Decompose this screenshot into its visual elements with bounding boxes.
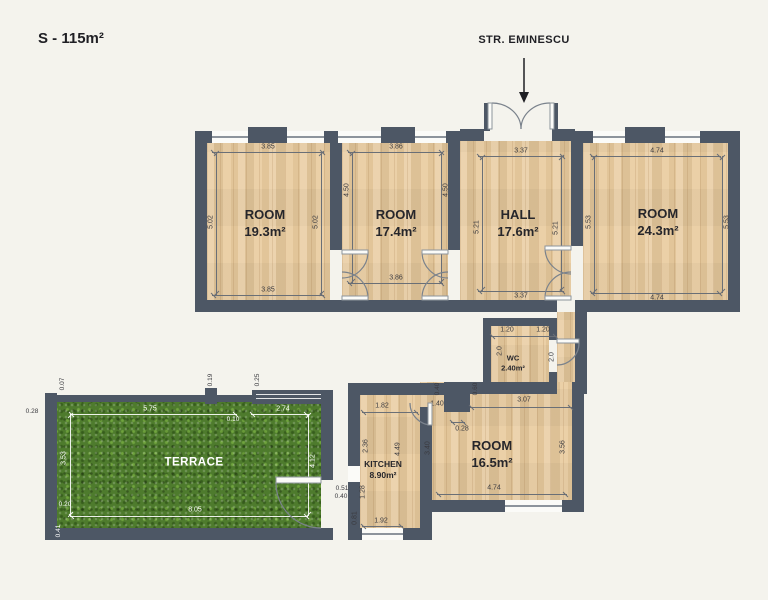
wall [625, 127, 665, 143]
wall-hatch [256, 398, 329, 399]
dim-line [70, 516, 308, 517]
wall [575, 300, 740, 312]
dim-label: 0.41 [56, 525, 63, 538]
kitchen-door-opening [348, 466, 360, 482]
window [593, 131, 625, 143]
dim-label: 3.40 [425, 441, 432, 455]
window [212, 131, 248, 143]
wall [248, 127, 287, 143]
room2-label: ROOM17.4m² [375, 207, 416, 241]
window [415, 131, 446, 143]
dim-line [591, 156, 721, 157]
wc-area: 2.40m² [501, 363, 525, 373]
room5-area: 16.5m² [471, 455, 512, 472]
wall [324, 131, 338, 143]
dim-line [482, 156, 483, 291]
dim-label: 3.85 [261, 287, 275, 294]
wall [448, 141, 460, 250]
dim-line [594, 156, 595, 293]
dim-line [451, 422, 465, 423]
terrace-top-wall [57, 395, 252, 402]
terrace-pillar [205, 388, 217, 404]
floor-plan: S - 115m² STR. EMINESCU [0, 0, 768, 600]
dim-label: 0.10 [227, 417, 240, 424]
dim-label: 1.82 [375, 403, 389, 410]
dim-line [216, 152, 217, 295]
wc-name: WC [507, 353, 520, 362]
page-title: S - 115m² [38, 30, 104, 47]
wall-hatch [256, 394, 329, 395]
dim-label: 0.28 [455, 426, 469, 433]
room1-label: ROOM19.3m² [244, 207, 285, 241]
window [362, 528, 403, 540]
dim-line [437, 494, 567, 495]
wc-label: WC2.40m² [501, 353, 525, 373]
dim-label: 3.85 [261, 144, 275, 151]
dim-label: 5.02 [208, 215, 215, 229]
room1-area: 19.3m² [244, 224, 285, 241]
dim-label: 3.53 [61, 451, 68, 465]
dim-line [352, 152, 353, 283]
dim-label: 5.21 [474, 220, 481, 234]
dim-label: 4.50 [443, 183, 450, 197]
dim-label: 0.25 [255, 374, 262, 387]
room4-area: 24.3m² [637, 223, 678, 240]
wall [195, 131, 212, 143]
dim-label: 0.40 [335, 494, 348, 501]
window [665, 131, 700, 143]
dim-label: 4.74 [487, 485, 501, 492]
dim-line [362, 526, 403, 527]
dim-line [441, 152, 442, 283]
street-label: STR. EMINESCU [478, 34, 569, 46]
dim-label: 0.07 [60, 378, 67, 391]
dim-label: 4.12 [310, 454, 317, 468]
wall [572, 382, 584, 512]
dim-line [321, 152, 322, 295]
dim-label: 4.49 [395, 442, 402, 456]
dim-line [212, 295, 324, 296]
dim-label: 8.05 [188, 507, 202, 514]
dim-label: 3.37 [514, 148, 528, 155]
hall-label: HALL17.6m² [497, 207, 538, 241]
room5-name: ROOM [472, 438, 512, 453]
room1-name: ROOM [245, 207, 285, 222]
terrace-name: TERRACE [164, 457, 223, 469]
kitchen-area: 8.90m² [364, 470, 402, 481]
dim-line [478, 156, 564, 157]
entrance-jamb [484, 103, 490, 131]
dim-label: 3.86 [389, 275, 403, 282]
dim-label: 5.21 [553, 221, 560, 235]
dim-label: 1.40 [430, 401, 444, 408]
dim-line [251, 414, 308, 415]
wall [348, 383, 444, 395]
wall [195, 131, 207, 312]
window [287, 131, 324, 143]
entrance-door-arc [521, 103, 550, 129]
notch-wall [444, 382, 470, 412]
dim-label: 0.81 [352, 511, 359, 525]
dim-line [362, 412, 418, 413]
dim-label: 1.20 [536, 327, 550, 334]
wall [460, 129, 484, 141]
room4-label: ROOM24.3m² [637, 206, 678, 240]
wall [381, 127, 415, 143]
window [338, 131, 381, 143]
dim-label: 4.74 [650, 295, 664, 302]
dim-label: 5.02 [313, 215, 320, 229]
kitchen-label: KITCHEN8.90m² [364, 459, 402, 481]
entrance-door-arc [492, 103, 521, 129]
terrace-label: TERRACE [164, 456, 223, 471]
street-arrow [519, 58, 529, 103]
wall [470, 382, 557, 394]
wall [321, 390, 333, 480]
wall [45, 528, 333, 540]
dim-label: 0.20 [59, 502, 72, 509]
hall-area: 17.6m² [497, 224, 538, 241]
dim-label: 3.37 [514, 293, 528, 300]
dim-label: 5.53 [586, 215, 593, 229]
room4-name: ROOM [638, 206, 678, 221]
wall [483, 318, 491, 390]
dim-label: 1.20 [500, 327, 514, 334]
window [505, 500, 562, 512]
dim-label: 2.0 [497, 346, 504, 356]
dim-line [561, 156, 562, 291]
dim-label: 5.75 [143, 406, 157, 413]
room2-area: 17.4m² [375, 224, 416, 241]
dim-line [348, 283, 443, 284]
dim-label: 4.74 [650, 148, 664, 155]
wall [420, 407, 432, 540]
wall [330, 143, 342, 250]
dim-label: 0.51 [336, 486, 349, 493]
dim-label: 0.60 [473, 383, 480, 396]
dim-line [491, 336, 557, 337]
dim-label: 0.40 [435, 383, 442, 396]
dim-label: 0.19 [208, 374, 215, 387]
dim-label: 0.28 [26, 409, 39, 416]
wall [195, 300, 557, 312]
dim-label: 3.07 [517, 397, 531, 404]
dim-label: 1.28 [360, 485, 367, 499]
dim-line [212, 152, 324, 153]
dim-label: 3.86 [389, 144, 403, 151]
dim-line [348, 152, 443, 153]
dim-label: 5.53 [724, 215, 731, 229]
dim-label: 2.74 [276, 406, 290, 413]
dim-label: 3.56 [560, 440, 567, 454]
wall [571, 141, 583, 246]
dim-line [470, 407, 572, 408]
wall [483, 318, 557, 326]
entrance-jamb [552, 103, 558, 131]
dim-label: 2.36 [363, 439, 370, 453]
hall-name: HALL [501, 207, 536, 222]
wall [45, 393, 57, 540]
kitchen-name: KITCHEN [364, 459, 402, 469]
dim-line [70, 414, 237, 415]
dim-label: 4.50 [344, 183, 351, 197]
room5-label: ROOM16.5m² [471, 438, 512, 472]
room2-name: ROOM [376, 207, 416, 222]
dim-label: 2.0 [549, 352, 556, 362]
dim-label: 1.92 [374, 518, 388, 525]
